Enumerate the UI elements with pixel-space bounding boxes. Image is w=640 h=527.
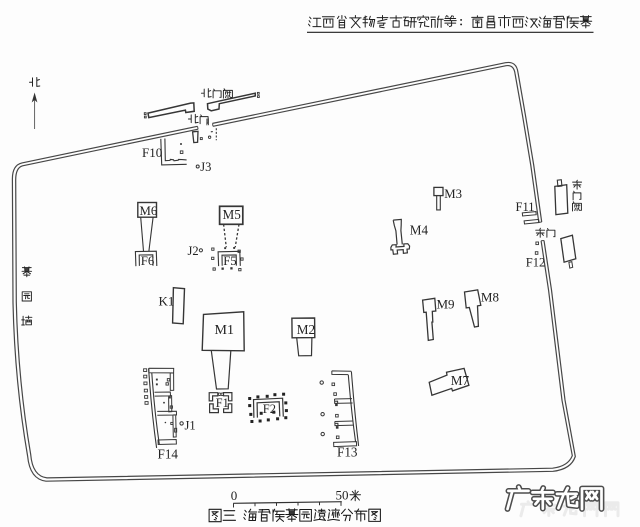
svg-text:F6: F6	[141, 254, 155, 268]
svg-text:F12: F12	[526, 256, 545, 270]
svg-text:M4: M4	[410, 222, 429, 237]
svg-text:F10: F10	[142, 145, 162, 160]
svg-text:K1: K1	[159, 294, 175, 309]
svg-text:J3: J3	[200, 160, 211, 174]
svg-text:M7: M7	[451, 373, 470, 388]
svg-text:M1: M1	[215, 323, 234, 338]
svg-text:F1: F1	[216, 396, 229, 410]
svg-text:M8: M8	[481, 290, 499, 305]
svg-text:F5: F5	[223, 254, 237, 268]
svg-text:0: 0	[231, 488, 238, 503]
svg-text:M2: M2	[297, 322, 315, 337]
svg-text:F14: F14	[158, 447, 179, 462]
svg-text:F13: F13	[337, 445, 358, 460]
svg-text:F2: F2	[263, 402, 276, 416]
svg-text:J1: J1	[185, 418, 196, 432]
svg-text:M6: M6	[140, 204, 158, 218]
svg-text:J2: J2	[188, 244, 199, 258]
svg-text:M9: M9	[437, 296, 455, 311]
svg-text:M5: M5	[223, 207, 242, 222]
svg-text:M3: M3	[444, 187, 462, 201]
svg-text:50: 50	[336, 487, 349, 502]
